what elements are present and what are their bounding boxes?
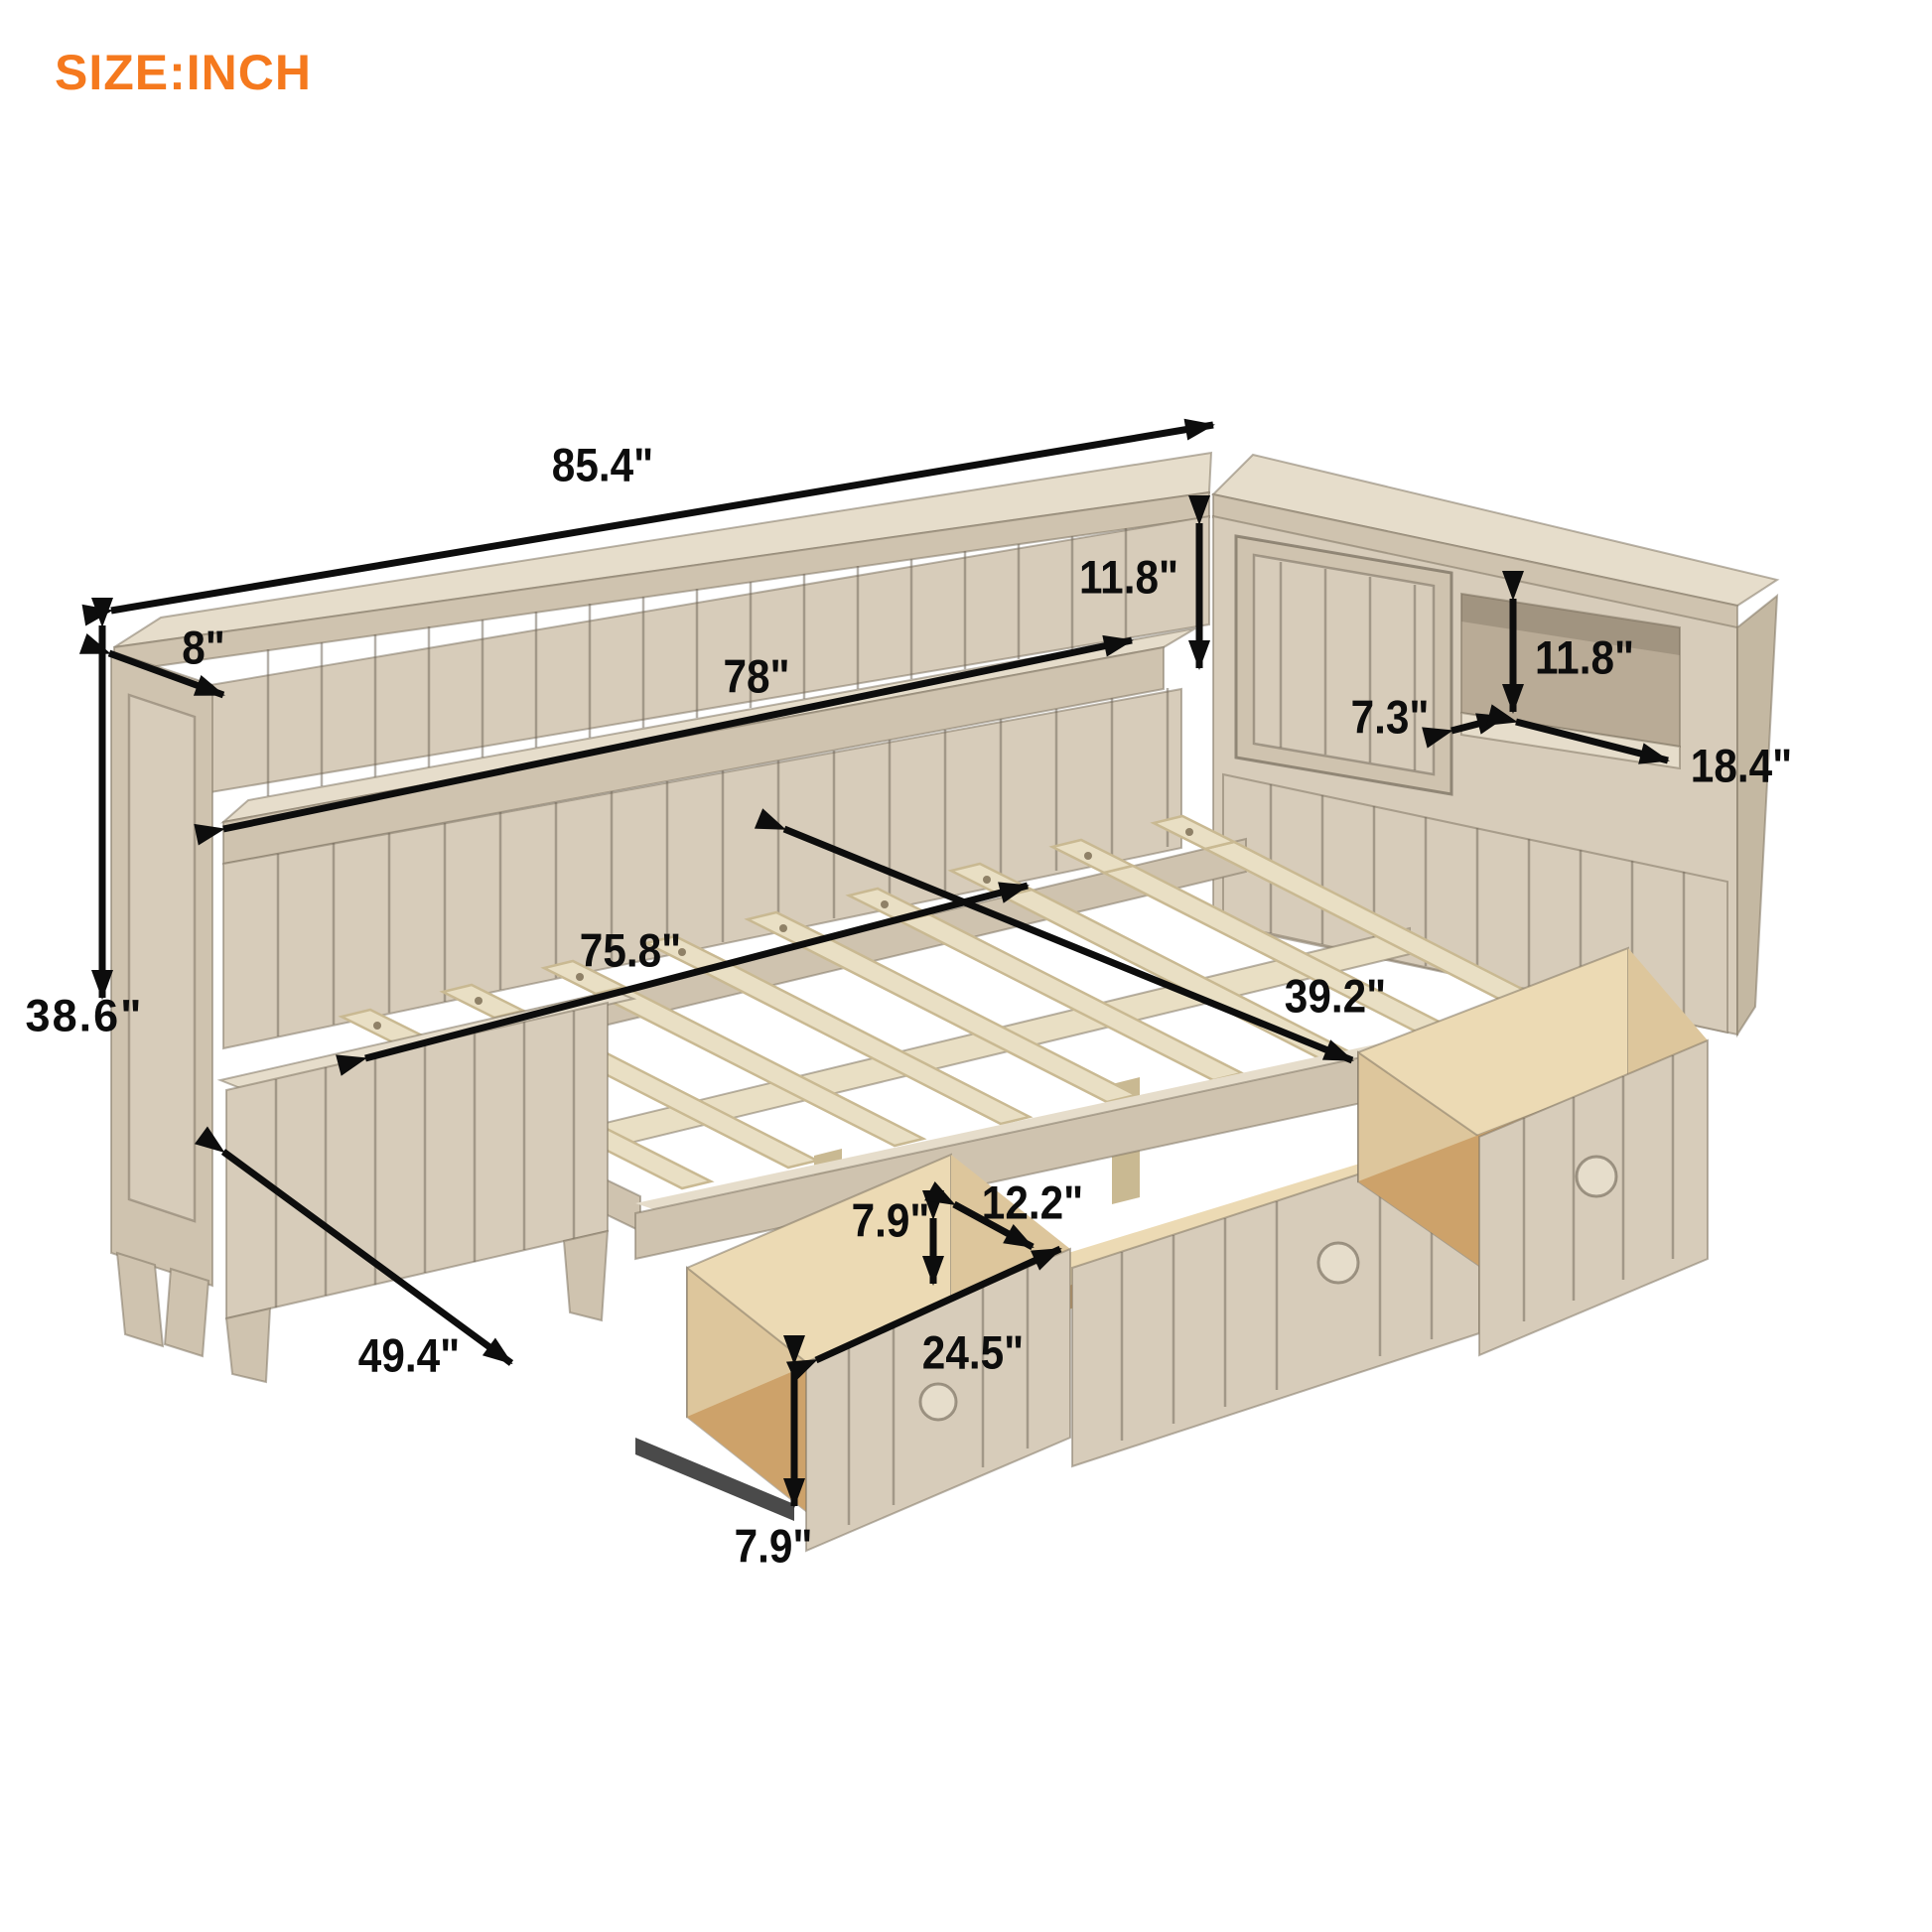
end-board-leg xyxy=(165,1269,208,1356)
dim-drawer-inner-width: 12.2" xyxy=(982,1179,1083,1226)
end-board-leg xyxy=(117,1253,163,1346)
dim-bed-inner-length: 75.8" xyxy=(580,927,681,974)
drawer-knob xyxy=(920,1384,956,1420)
dim-overall-length: 85.4" xyxy=(552,442,653,488)
drawer-knob xyxy=(1318,1243,1358,1283)
page-title: SIZE:INCH xyxy=(55,44,312,101)
dim-top-shelf-depth: 8" xyxy=(182,624,225,671)
dim-bed-width: 39.2" xyxy=(1285,973,1386,1020)
dim-drawer-front-height: 7.9" xyxy=(735,1523,813,1570)
drawer-knob xyxy=(1577,1157,1616,1196)
daybed-illustration xyxy=(0,0,1932,1932)
dim-shelf-length: 78" xyxy=(723,653,789,700)
footboard-front xyxy=(226,1003,608,1318)
end-board-panel xyxy=(129,695,195,1221)
dim-sliding-door-width: 7.3" xyxy=(1351,694,1430,741)
dim-overall-height: 38.6" xyxy=(26,994,144,1038)
footboard xyxy=(220,991,633,1382)
dim-backrest-shelf-height: 11.8" xyxy=(1079,554,1178,601)
dim-drawer-inner-depth: 7.9" xyxy=(852,1197,930,1244)
corner-right-side xyxy=(1737,596,1777,1035)
dim-cubby-height: 11.8" xyxy=(1535,634,1634,681)
dim-drawer-front-width: 24.5" xyxy=(922,1329,1024,1376)
product-dimension-diagram: SIZE:INCH 85.4" 8" 11.8" 78" 7.3" 11.8" … xyxy=(0,0,1932,1932)
dim-cubby-depth: 18.4" xyxy=(1691,743,1792,789)
footboard-leg xyxy=(226,1309,270,1382)
footboard-leg xyxy=(564,1231,608,1320)
dim-side-rail-length: 49.4" xyxy=(358,1332,460,1379)
